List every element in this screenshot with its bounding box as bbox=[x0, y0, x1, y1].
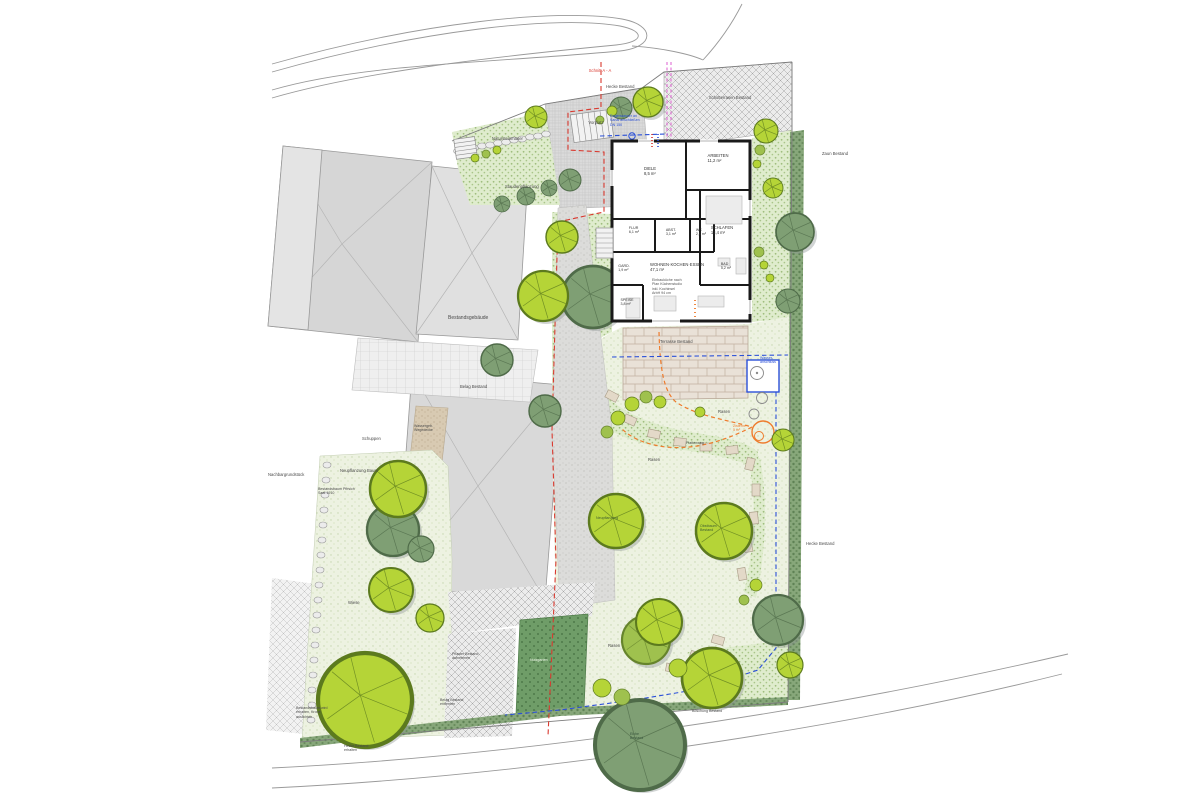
label-existing-paving: Belag Bestand bbox=[460, 384, 487, 389]
label-existing-tree-bottom: Bestandsbaum wird erhalten, Krone auslic… bbox=[296, 706, 328, 719]
tree-icon bbox=[772, 429, 794, 451]
room-note-kitchen: Einbauküche nach Plan Küchenstudio inkl.… bbox=[652, 278, 682, 296]
tree-icon bbox=[518, 271, 568, 321]
tree-icon bbox=[589, 494, 643, 548]
label-forecourt: Vorplatz bbox=[588, 120, 603, 125]
label-meadow: Wiese bbox=[348, 600, 360, 605]
label-gravel-surface: Wassergeb. Wegedecke bbox=[414, 424, 433, 433]
label-perennials: Staudenpflanzung bbox=[505, 184, 539, 189]
room-label-corridor: FLUR 6,1 m² bbox=[629, 226, 639, 235]
tree-icon bbox=[525, 106, 547, 128]
tree-icon bbox=[633, 87, 663, 117]
label-remove-paving: Pflaster Bestand aufnehmen bbox=[452, 652, 478, 661]
tree-icon bbox=[416, 604, 444, 632]
room-label-bath: BAD 5,2 m² bbox=[721, 262, 731, 271]
label-lawn-1: Rasen bbox=[718, 409, 730, 414]
label-fence-right: Zaun Bestand bbox=[822, 151, 848, 156]
label-oak: Eiche Bestand bbox=[630, 732, 643, 741]
label-shed: Schuppen bbox=[362, 436, 381, 441]
label-existing-building: Bestandsgebäude bbox=[448, 315, 488, 321]
label-section-line: Schnitt A - A bbox=[589, 68, 612, 73]
label-rainwater-note: Regenwasser an Kanal anschließen DN 150 bbox=[610, 114, 640, 127]
room-label-storage: ABST. 3,1 m² bbox=[666, 228, 676, 237]
label-lawn-3: Rasen bbox=[608, 643, 620, 648]
room-label-office: ARBEITEN 11,2 m² bbox=[708, 153, 729, 164]
label-fruit-tree: Obstbaum Bestand bbox=[700, 524, 717, 533]
tree-icon bbox=[408, 536, 434, 562]
tree-icon bbox=[777, 652, 803, 678]
label-existing-tree-left: Bestandsbaum Pfirsich Saat 1910 bbox=[318, 487, 355, 496]
label-cistern: Zisterne 5 m³ bbox=[733, 424, 746, 433]
steps-driveway bbox=[570, 109, 614, 142]
room-label-hall: DIELE 8,5 m² bbox=[644, 166, 656, 177]
label-stone-wall: Natursteinmauer bbox=[492, 136, 523, 141]
tree-icon bbox=[517, 187, 535, 205]
vegetable-bed bbox=[516, 614, 588, 714]
label-water-connection: Wasser- anschluss bbox=[760, 356, 776, 365]
tree-icon bbox=[318, 653, 412, 747]
tree-icon bbox=[369, 568, 413, 612]
label-kitchen-garden: Nutzgarten bbox=[530, 658, 548, 662]
tree-icon bbox=[776, 213, 814, 251]
terrace bbox=[623, 326, 748, 400]
label-gravel-parking: Schotterrasen Bestand bbox=[709, 95, 752, 100]
label-neighbour-plot: Nachbargrundstück bbox=[268, 472, 304, 477]
tree-icon bbox=[370, 461, 426, 517]
room-label-pantry: SPEISE 3,8 m² bbox=[621, 298, 634, 307]
tree-icon bbox=[494, 196, 510, 212]
label-lawn-2: Rasen bbox=[648, 457, 660, 462]
label-terrace: Terrasse Bestand bbox=[660, 339, 693, 344]
room-label-wc: WC 2,1 m² bbox=[696, 228, 706, 237]
tree-icon bbox=[753, 595, 803, 645]
label-embankment: Böschung Bestand bbox=[692, 709, 722, 713]
label-hedge-bottom: Hecke Bestand erhalten bbox=[344, 744, 368, 753]
tree-icon bbox=[541, 180, 557, 196]
room-label-bedroom: SCHLAFEN 13,4 m² bbox=[711, 225, 733, 236]
tree-icon bbox=[481, 344, 513, 376]
room-label-cloakroom: GARD. 1,9 m² bbox=[618, 264, 629, 273]
tree-icon bbox=[776, 289, 800, 313]
label-flag-path: Plattenweg bbox=[686, 441, 704, 445]
tree-icon bbox=[559, 169, 581, 191]
tree-icon bbox=[682, 648, 742, 708]
room-label-living: WOHNEN·KOCHEN·ESSEN 47,1 m² bbox=[650, 262, 704, 273]
label-hedge-top: Hecke Bestand bbox=[606, 84, 634, 89]
label-hedge-right: Hecke Bestand bbox=[806, 541, 834, 546]
label-remove-surface: Belag Bestand entfernen bbox=[440, 698, 463, 707]
tree-icon bbox=[595, 700, 685, 790]
label-new-tree: Neupflanzung Baum bbox=[340, 468, 378, 473]
tree-icon bbox=[636, 599, 682, 645]
tree-icon bbox=[529, 395, 561, 427]
label-new-planting: Neupflanzung bbox=[596, 516, 618, 520]
tree-icon bbox=[546, 221, 578, 253]
landscape-site-plan: Schnitt A - A Hecke Bestand Schotterrase… bbox=[0, 0, 1200, 800]
tree-icon bbox=[754, 119, 778, 143]
tree-icon bbox=[763, 178, 783, 198]
